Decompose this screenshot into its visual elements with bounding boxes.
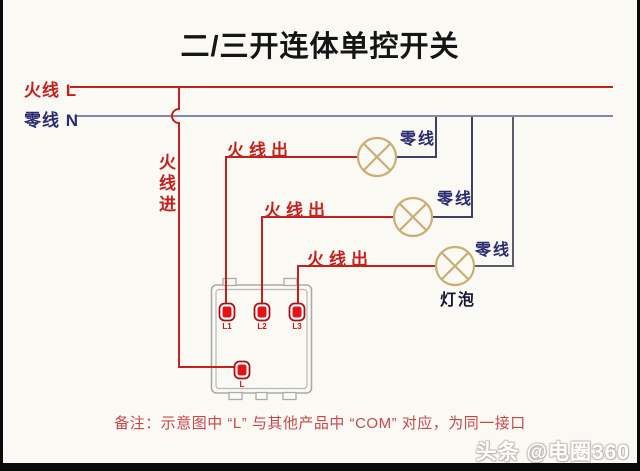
terminal-label-L: L: [235, 380, 249, 389]
live-out-label-2: 火线出: [264, 196, 330, 221]
watermark: 头条 @电圈360: [476, 436, 630, 466]
page-title: 二/三开连体单控开关: [0, 23, 640, 65]
lamp-1-icon: [358, 138, 396, 176]
terminal-L3: [290, 304, 305, 321]
left-border: [0, 0, 3, 471]
live-in-label: 火线进: [158, 152, 177, 215]
lamps: [358, 138, 474, 285]
neutral-label-2: 零线: [437, 185, 473, 209]
wiring-diagram-page: 二/三开连体单控开关 火线 L 零线 N 火线进 火线出 火线出 火线出 零线 …: [0, 0, 640, 471]
box-bottom-tab: [229, 393, 242, 400]
neutral-label-1: 零线: [400, 125, 436, 149]
terminal-label-L1: L1: [220, 322, 234, 331]
footnote: 备注：示意图中 “L” 与其他产品中 “COM” 对应，为同一接口: [0, 412, 640, 433]
neutral-label-3: 零线: [475, 236, 511, 260]
live-wires: [70, 87, 613, 367]
terminal-L2: [255, 304, 270, 321]
circuit-diagram: [0, 0, 640, 471]
live-out-wire-3: [298, 266, 436, 307]
lamp-3-icon: [436, 247, 474, 285]
live-out-label-3: 火线出: [307, 245, 373, 270]
live-line-label: 火线 L: [24, 76, 77, 101]
bottom-bar: [0, 463, 640, 471]
live-out-label-1: 火线出: [227, 136, 293, 161]
bulb-label: 灯泡: [440, 286, 476, 310]
terminal-label-L2: L2: [255, 322, 269, 331]
lamp-2-icon: [394, 198, 432, 236]
terminal-L-com: [235, 362, 250, 379]
neutral-line-label: 零线 N: [24, 106, 79, 131]
box-top-tab: [223, 279, 236, 286]
terminal-label-L3: L3: [290, 322, 304, 331]
box-bottom-tab: [283, 393, 296, 400]
terminal-L1: [220, 304, 235, 321]
box-bottom-tab: [256, 393, 267, 400]
box-top-tab: [284, 279, 297, 286]
